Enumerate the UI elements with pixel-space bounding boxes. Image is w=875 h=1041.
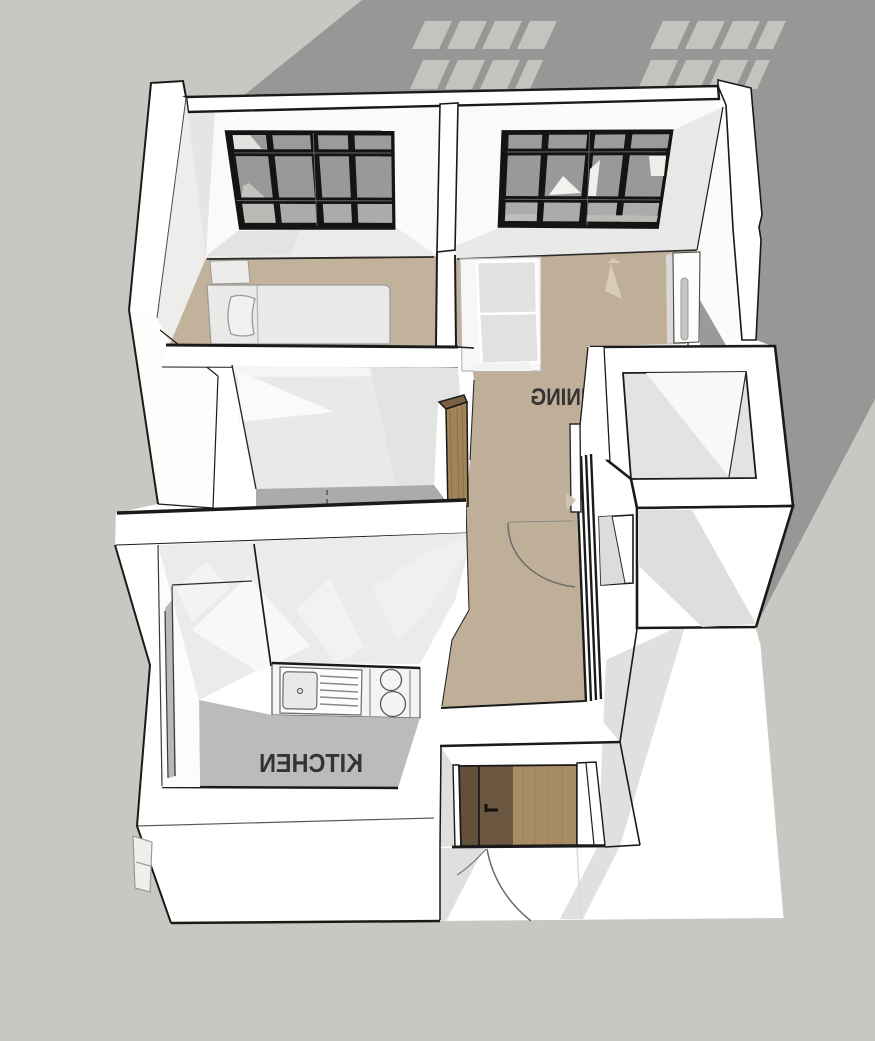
svg-text:KITCHEN: KITCHEN [259, 750, 363, 778]
